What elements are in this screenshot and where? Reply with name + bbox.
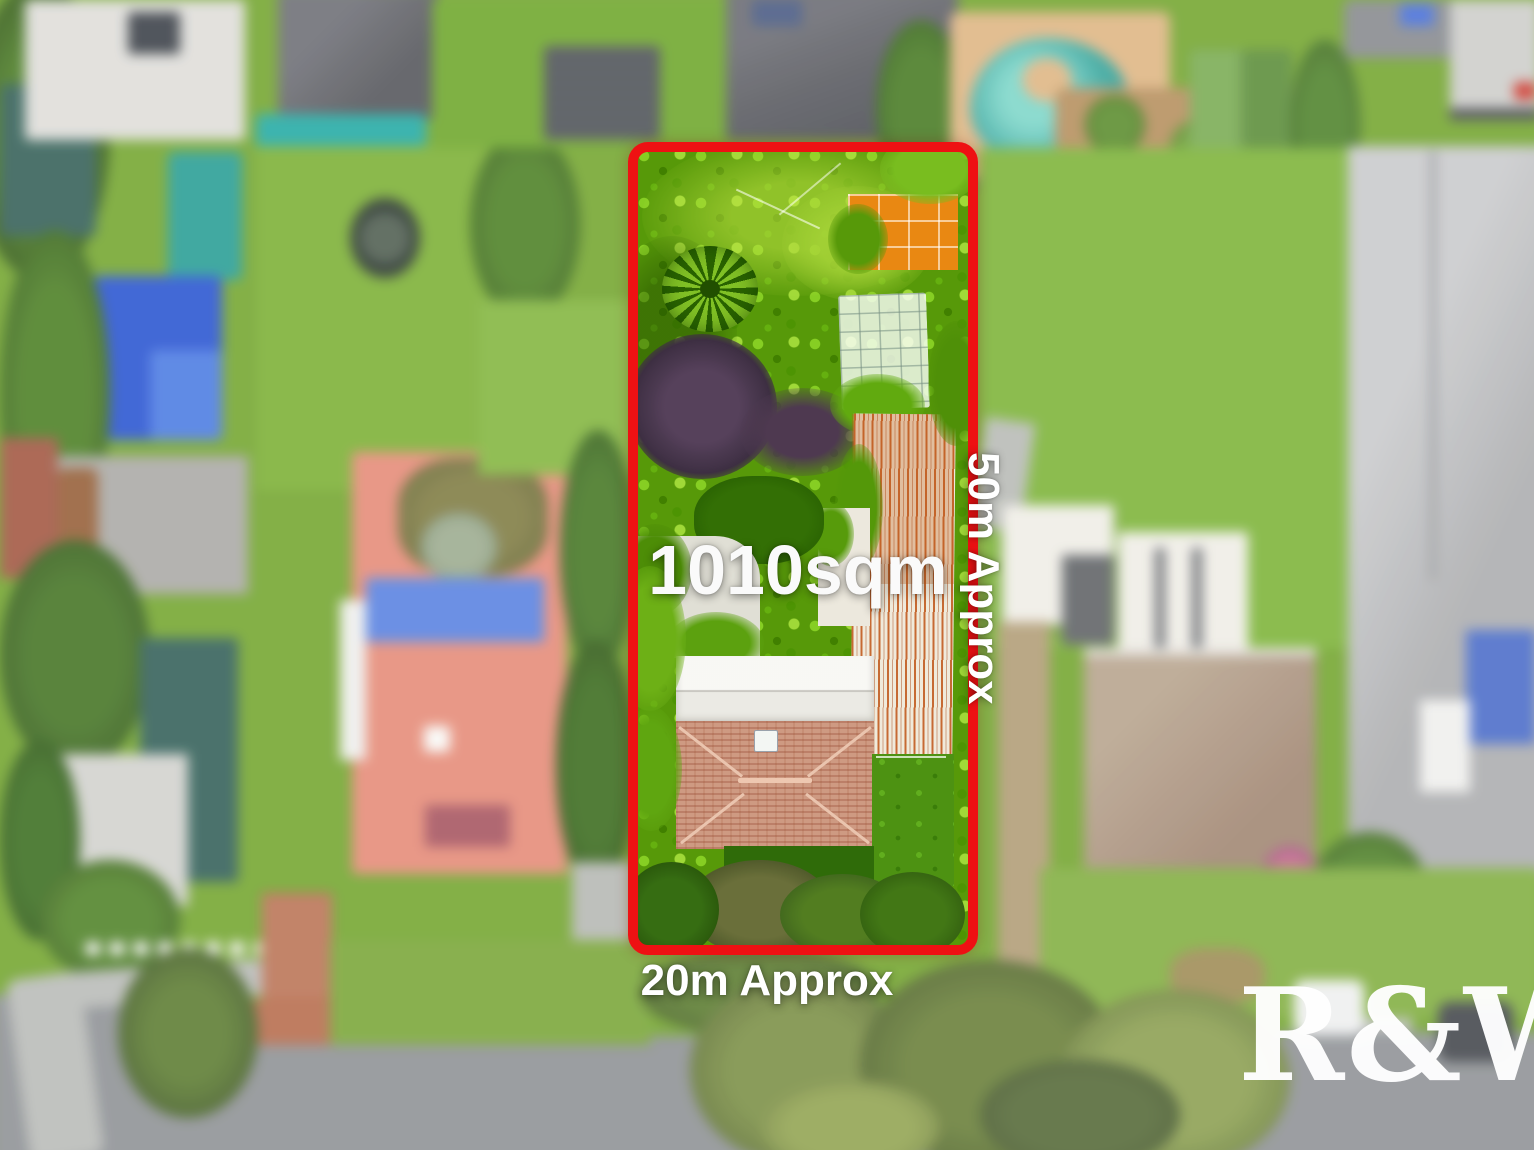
aerial-photo: 1010sqm 50m Approx 20m Approx R&W: [0, 0, 1534, 1150]
frontage-label: 20m Approx: [617, 956, 917, 1006]
depth-label: 50m Approx: [958, 452, 1008, 705]
area-label: 1010sqm: [615, 530, 981, 610]
agency-watermark-logo: R&W: [1238, 972, 1534, 1100]
